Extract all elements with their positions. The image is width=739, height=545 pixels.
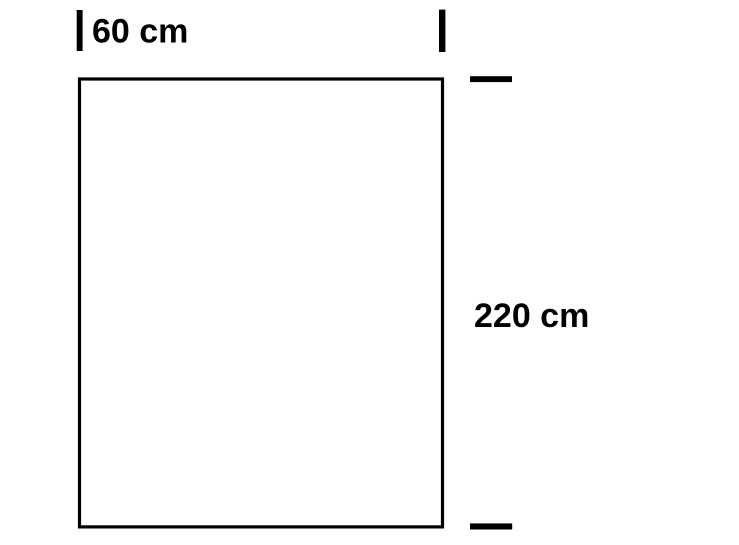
- svg-text:60 cm: 60 cm: [92, 13, 188, 51]
- svg-text:220 cm: 220 cm: [474, 297, 589, 335]
